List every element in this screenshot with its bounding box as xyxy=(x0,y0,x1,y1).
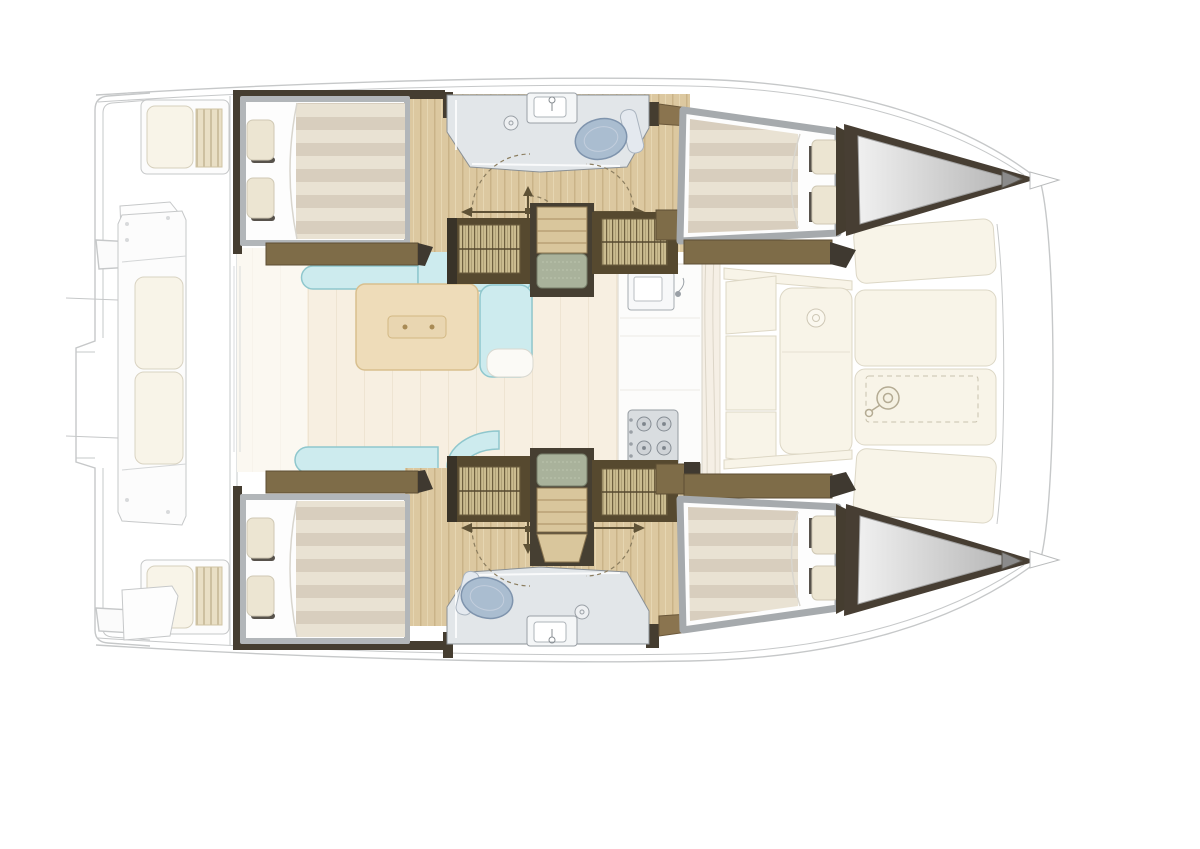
bed-headboard xyxy=(266,471,418,493)
sofa-chaise-pillow xyxy=(487,349,533,377)
upper-cockpit-seat-slats xyxy=(196,109,222,167)
shower-icon xyxy=(504,116,518,130)
bathroom-sink-basin xyxy=(534,622,566,642)
mattress-stripes xyxy=(296,103,405,239)
floor-plan-canvas xyxy=(0,0,1200,849)
bed-shelf xyxy=(684,240,832,264)
foredeck xyxy=(853,218,997,523)
upper-forward-cabin xyxy=(659,104,856,268)
table-fitting xyxy=(430,325,435,330)
stair-landing-mat xyxy=(537,254,587,288)
pillow xyxy=(247,576,274,616)
bench-bolt xyxy=(125,238,129,242)
salon-table-inset xyxy=(388,316,446,338)
lower-helm-console-ghost xyxy=(122,586,178,640)
shower-icon xyxy=(575,605,589,619)
bench-bolt xyxy=(166,510,170,514)
bathroom-sink-basin xyxy=(534,97,566,117)
forward-cockpit-side-cushion xyxy=(726,276,776,334)
pillow xyxy=(812,186,838,224)
forward-cockpit-side-cushion xyxy=(726,336,776,410)
table-fitting xyxy=(403,325,408,330)
wardrobe-side-panel xyxy=(447,218,457,284)
foredeck-cushion-panel xyxy=(853,448,997,524)
pillow xyxy=(247,178,274,218)
stair-steps xyxy=(537,207,587,253)
pillow xyxy=(812,566,838,600)
foredeck-cushion-panel xyxy=(853,218,997,284)
shelf-end xyxy=(830,242,856,268)
bench-bolt xyxy=(166,216,170,220)
upper-cockpit-seat-cushion xyxy=(147,106,193,168)
foredeck-cushion-panel xyxy=(855,290,996,366)
salon-entry-wash xyxy=(237,248,307,472)
aft-bench-cushion xyxy=(135,277,183,369)
pillow xyxy=(812,516,838,554)
cup-holder-icon xyxy=(807,309,825,327)
bow-connecting-curve xyxy=(1041,184,1053,558)
stair-bottom-taper xyxy=(537,534,587,562)
mattress-stripes xyxy=(688,507,798,621)
wardrobe-side-panel xyxy=(447,456,457,522)
bed-footboard xyxy=(266,243,418,265)
lower-bow-tip xyxy=(1030,551,1059,568)
pillow xyxy=(247,518,274,558)
forestay-deck-line xyxy=(997,224,1004,524)
lower-cockpit-seat-slats xyxy=(196,567,222,625)
stair-steps xyxy=(537,488,587,532)
bench-bolt xyxy=(125,222,129,226)
shelf-end xyxy=(830,472,856,498)
pillow xyxy=(247,120,274,160)
aft-cockpit xyxy=(118,100,229,640)
mattress-stripes xyxy=(688,119,798,233)
lower-hull xyxy=(233,448,856,658)
galley-stove xyxy=(628,410,678,466)
catamaran-floor-plan xyxy=(0,0,1200,849)
lower-hull-bathroom xyxy=(447,567,649,646)
swim-platform-lines xyxy=(66,298,118,458)
upper-bow-tip xyxy=(1030,172,1059,189)
lower-forward-cabin xyxy=(659,472,856,636)
pillow xyxy=(812,140,838,174)
upper-hull-bathroom xyxy=(447,93,649,172)
galley-sink-basin xyxy=(634,277,662,301)
aft-bench-cushion xyxy=(135,372,183,464)
mattress-stripes xyxy=(296,501,405,637)
bench-bolt xyxy=(125,498,129,502)
bed-shelf xyxy=(684,474,832,498)
